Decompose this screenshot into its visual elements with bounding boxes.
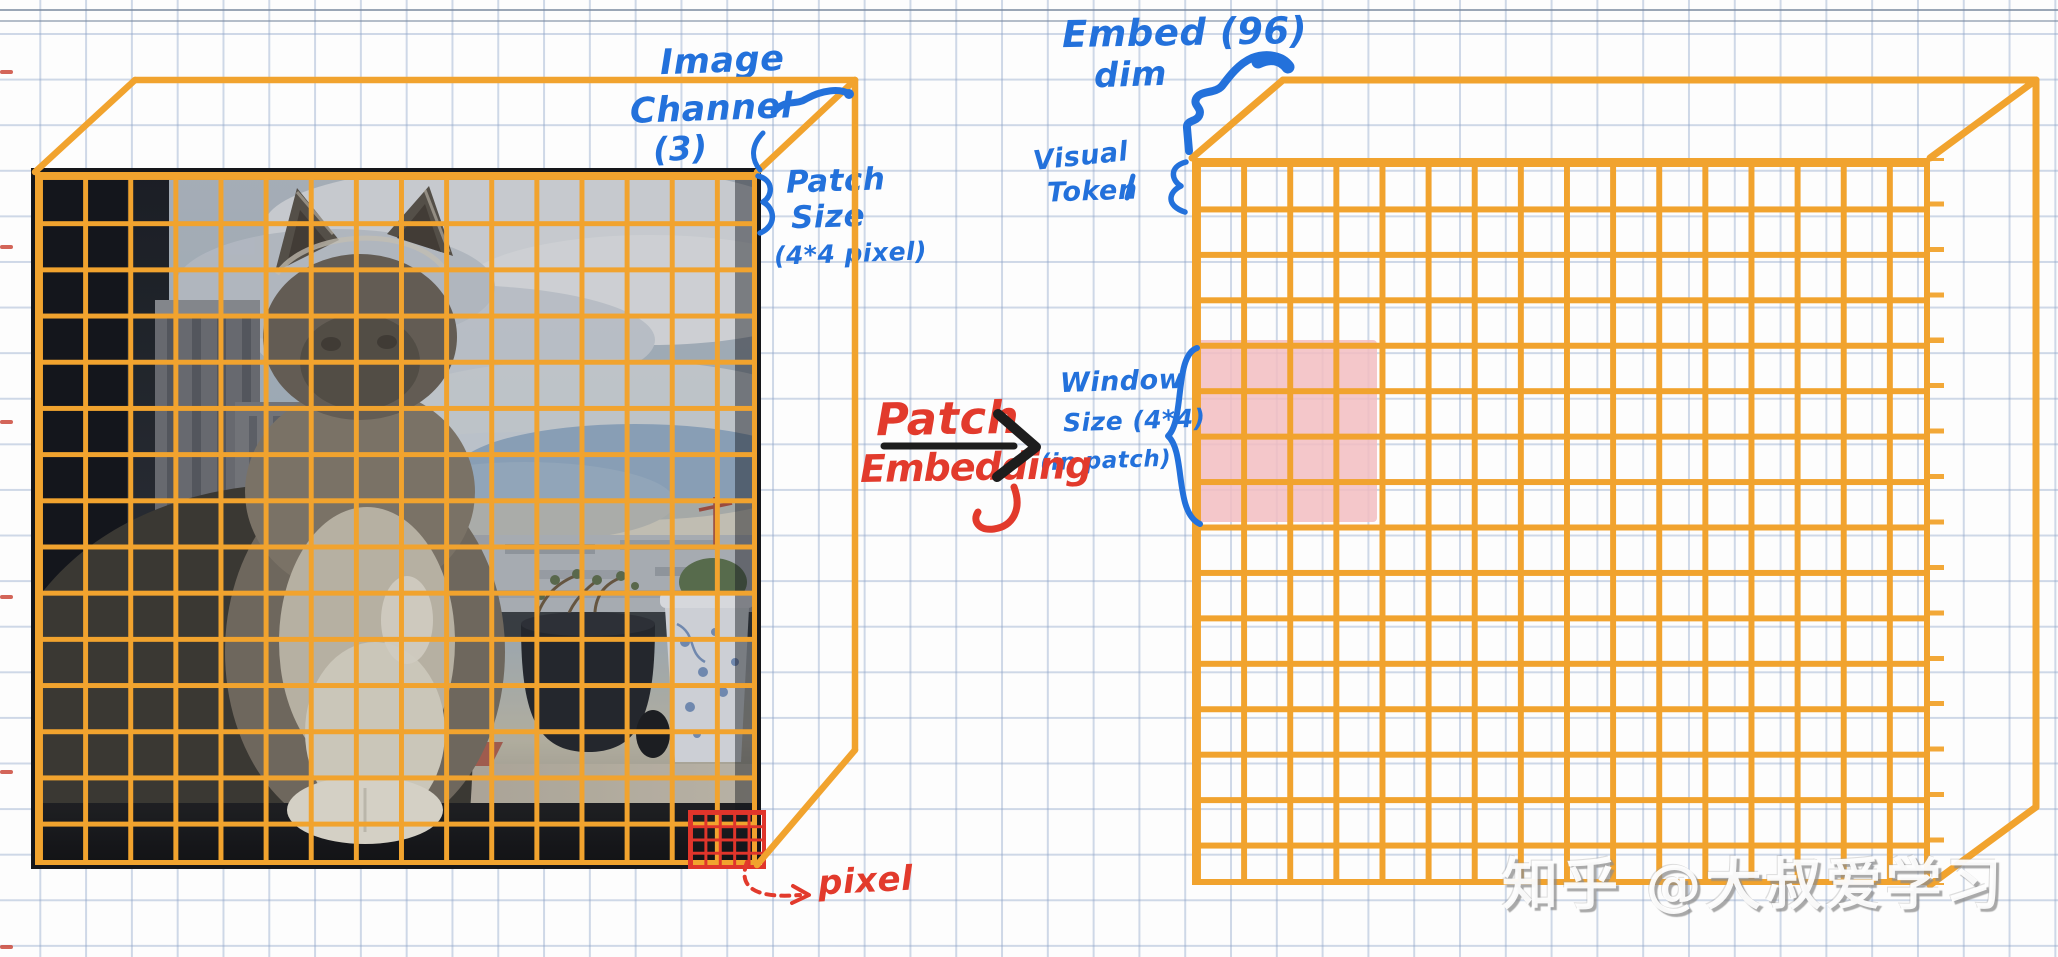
window-size-line2: Size (4*4) bbox=[1063, 406, 1206, 436]
patch-size-line1: Patch bbox=[785, 164, 885, 198]
paper-top-rule-2 bbox=[0, 20, 2058, 22]
embed-dim-line2: dim bbox=[1093, 57, 1167, 94]
patch-embedding-line1: Patch bbox=[876, 395, 1020, 442]
patch-embedding-line2: Embedding bbox=[860, 446, 1092, 488]
token-grid bbox=[1192, 158, 1930, 885]
image-channel-line1: Image bbox=[659, 42, 785, 81]
margin-tick bbox=[0, 245, 13, 249]
watermark: 知乎 @大叔爱学习 bbox=[1502, 840, 2006, 921]
patch-size-line3: (4*4 pixel) bbox=[774, 238, 928, 268]
pixel-grid bbox=[688, 810, 766, 869]
patch-size-line2: Size bbox=[790, 201, 865, 235]
token-grid-row-overshoot bbox=[1930, 158, 1944, 885]
visual-token-line2: Token bbox=[1047, 176, 1138, 206]
token-grid-lines bbox=[1192, 158, 1930, 885]
margin-tick bbox=[0, 420, 13, 424]
pixel-label: pixel bbox=[817, 862, 914, 901]
image-patch-grid bbox=[35, 172, 757, 865]
margin-tick bbox=[0, 70, 13, 74]
margin-tick bbox=[0, 595, 13, 599]
diagram-canvas: Image Channel (3) Patch Size (4*4 pixel)… bbox=[0, 0, 2058, 957]
margin-tick bbox=[0, 945, 13, 949]
image-channel-line3: (3) bbox=[652, 131, 708, 167]
embed-dim-line1: Embed (96) bbox=[1062, 12, 1308, 53]
margin-tick bbox=[0, 770, 13, 774]
input-image bbox=[31, 168, 761, 869]
image-channel-line2: Channel bbox=[629, 89, 793, 130]
paper-top-rule-1 bbox=[0, 9, 2058, 11]
window-size-line1: Window bbox=[1060, 366, 1185, 397]
